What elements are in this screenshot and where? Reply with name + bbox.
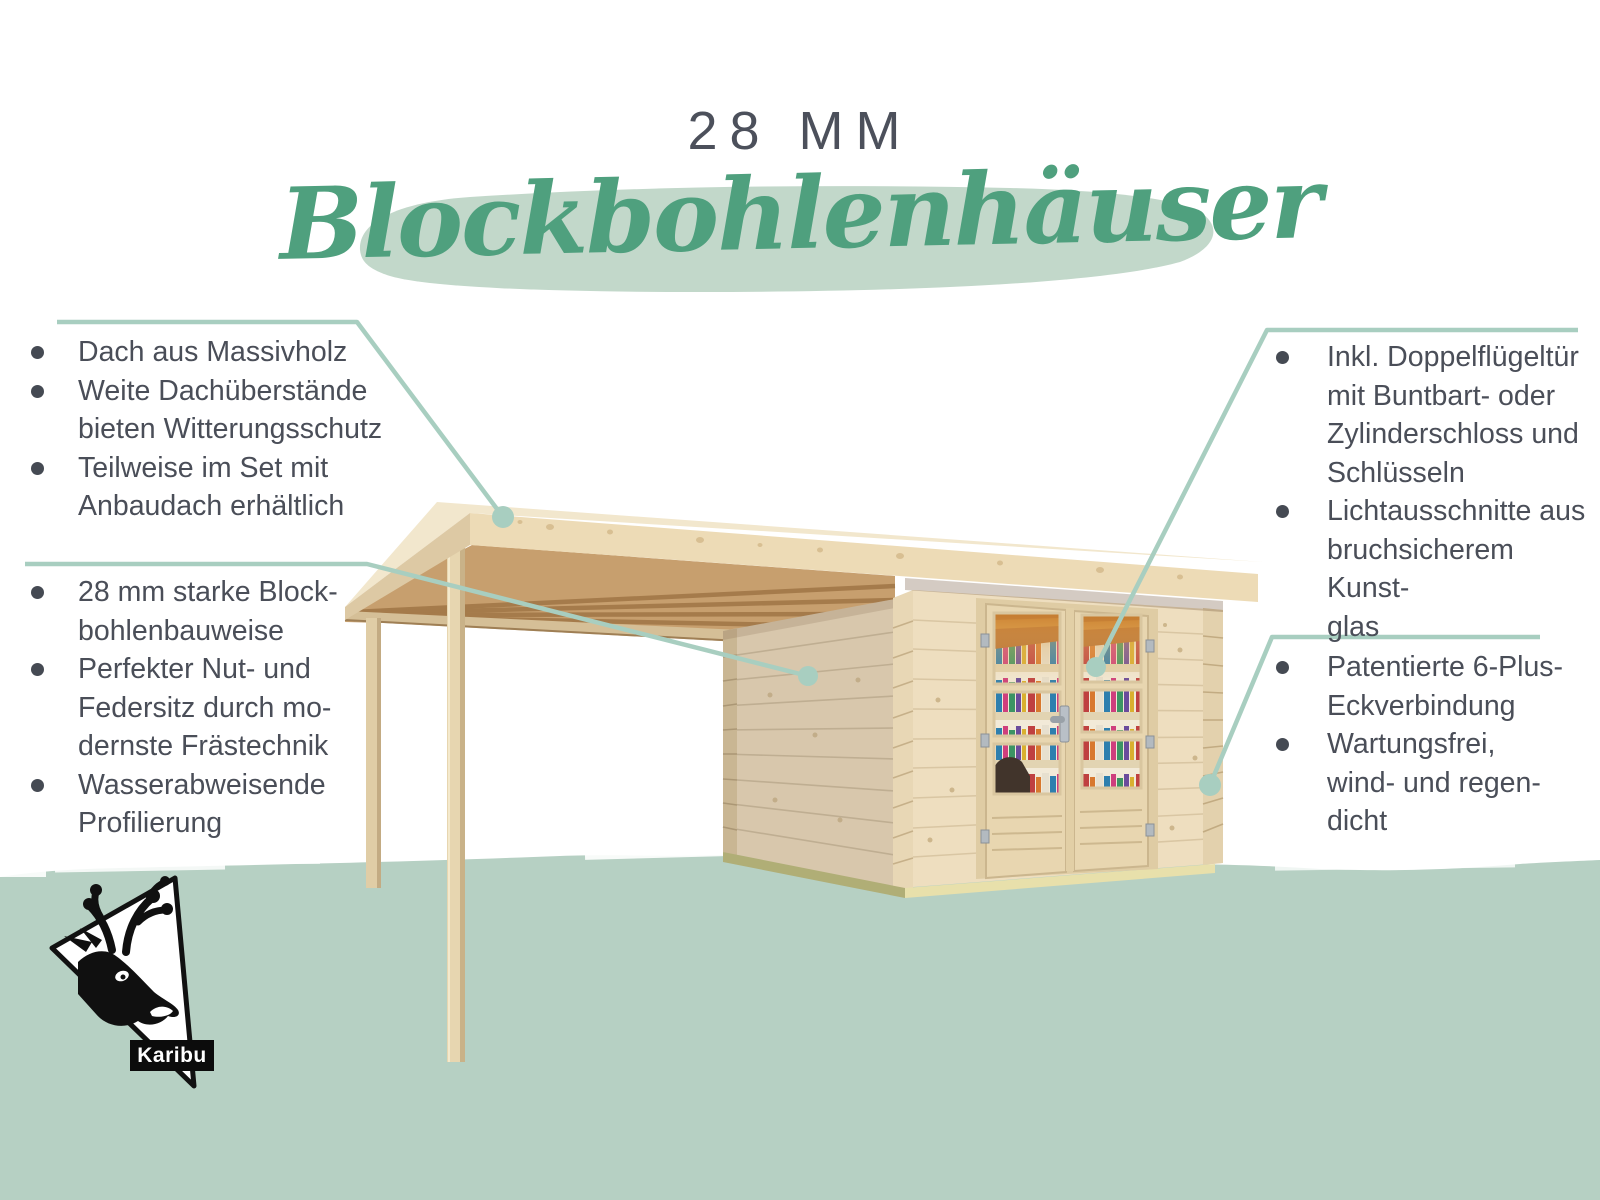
bullet-dot (1276, 351, 1289, 364)
feature-group-roof: Dach aus Massivholz Weite Dachüberstände… (18, 333, 418, 526)
door-leaf-right (1074, 611, 1148, 871)
feature-item: Inkl. Doppelflügeltür mit Buntbart- oder… (1268, 338, 1588, 492)
feature-item: Wasserabweisende Profilierung (18, 766, 418, 843)
feature-group-walls: 28 mm starke Block- bohlenbauweise Perfe… (18, 573, 418, 843)
ground-band (0, 850, 1600, 1200)
canopy-post-front (447, 548, 465, 1062)
double-door (976, 598, 1158, 879)
feature-text: Wartungsfrei, wind- und regen- dicht (1327, 725, 1541, 841)
feature-group-door: Inkl. Doppelflügeltür mit Buntbart- oder… (1268, 338, 1588, 646)
feature-item: Patentierte 6-Plus- Eckverbindung (1268, 648, 1588, 725)
infographic-page: 28 MM Blockbohlenhäuser Dach aus Massivh… (0, 0, 1600, 1200)
side-wall (723, 599, 895, 887)
feature-text: Perfekter Nut- und Federsitz durch mo- d… (78, 650, 331, 766)
feature-text: Wasserabweisende Profilierung (78, 766, 326, 843)
feature-item: Perfekter Nut- und Federsitz durch mo- d… (18, 650, 418, 766)
log-ends-right-corner (1203, 608, 1223, 865)
bullet-dot (31, 385, 44, 398)
bullet-dot (31, 779, 44, 792)
bullet-dot (1276, 738, 1289, 751)
door-leaf-left (986, 604, 1066, 878)
feature-item: 28 mm starke Block- bohlenbauweise (18, 573, 418, 650)
feature-text: Teilweise im Set mit Anbaudach erhältlic… (78, 449, 344, 526)
feature-text: Inkl. Doppelflügeltür mit Buntbart- oder… (1327, 338, 1579, 492)
feature-item: Teilweise im Set mit Anbaudach erhältlic… (18, 449, 418, 526)
bullet-dot (31, 346, 44, 359)
bullet-dot (31, 663, 44, 676)
bullet-dot (1276, 505, 1289, 518)
feature-item: Wartungsfrei, wind- und regen- dicht (1268, 725, 1588, 841)
feature-text: Weite Dachüberstände bieten Witterungssc… (78, 372, 382, 449)
bullet-dot (31, 462, 44, 475)
bullet-dot (31, 586, 44, 599)
feature-text: Lichtausschnitte aus bruchsicherem Kunst… (1327, 492, 1588, 646)
feature-text: Dach aus Massivholz (78, 333, 347, 372)
feature-text: Patentierte 6-Plus- Eckverbindung (1327, 648, 1563, 725)
logo-wordmark: Karibu (130, 1040, 214, 1071)
feature-item: Lichtausschnitte aus bruchsicherem Kunst… (1268, 492, 1588, 646)
log-ends-front-corner (893, 590, 913, 889)
feature-group-corner: Patentierte 6-Plus- Eckverbindung Wartun… (1268, 648, 1588, 841)
bullet-dot (1276, 661, 1289, 674)
door-glازing-left (994, 613, 1060, 794)
feature-item: Dach aus Massivholz (18, 333, 418, 372)
feature-text: 28 mm starke Block- bohlenbauweise (78, 573, 338, 650)
log-ends-left (723, 628, 737, 856)
feature-item: Weite Dachüberstände bieten Witterungssc… (18, 372, 418, 449)
